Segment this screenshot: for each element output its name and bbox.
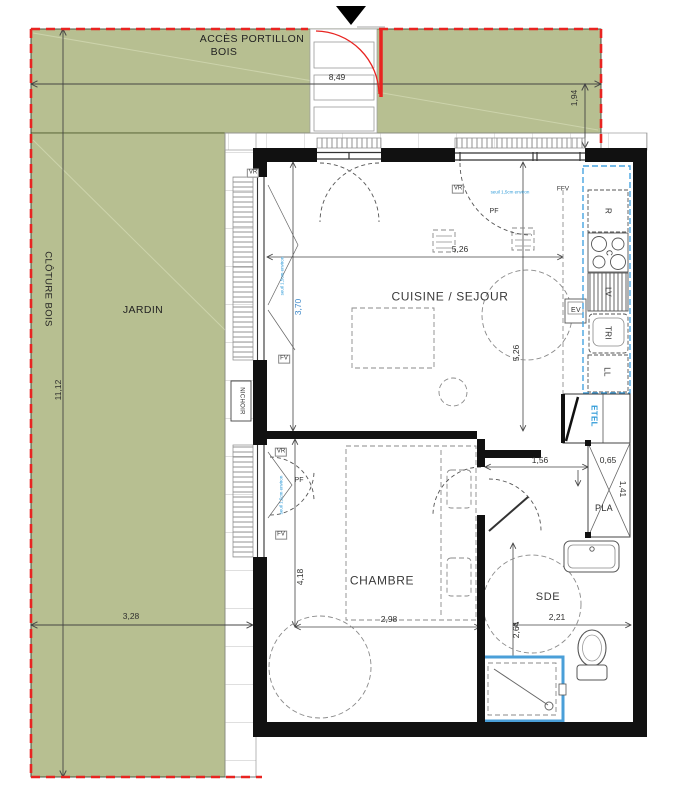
threshold-note: seuil 1,5cm environ	[279, 257, 284, 296]
cooktop-label: C	[604, 250, 613, 256]
threshold-note: seuil 1,5cm environ	[491, 189, 530, 194]
window-tag-fv: FV	[275, 531, 287, 540]
room-label-bedroom: CHAMBRE	[350, 574, 414, 587]
washer-label: LL	[602, 367, 611, 377]
sorting-label: TRI	[603, 326, 612, 340]
wall-top	[381, 148, 455, 162]
partition-bedroom-north	[267, 431, 477, 439]
toilet-tank	[577, 665, 607, 680]
door-tag-pf: PF	[295, 477, 304, 485]
dim-wardrobe-width: 0,65	[600, 456, 617, 466]
washbasin	[564, 541, 619, 572]
wall-left	[253, 557, 267, 737]
window-sill	[317, 138, 381, 148]
window-sill	[233, 445, 253, 557]
dim-site-width: 8,49	[329, 73, 346, 83]
dim-living-width: 5,26	[452, 245, 469, 255]
dim-wardrobe-depth: 1,41	[617, 481, 627, 498]
window-sill	[455, 138, 585, 148]
dim-gate-return: 1,94	[570, 90, 580, 107]
shower-handle	[559, 684, 566, 695]
dim-bath-depth: 2,64	[512, 622, 522, 639]
dim-site-height: 11,12	[54, 380, 64, 401]
floor-plan-drawing	[0, 0, 694, 800]
door-tag-pf: PF	[490, 208, 499, 216]
step	[314, 107, 374, 131]
partition-utility	[561, 394, 565, 443]
shower-tray	[481, 657, 563, 721]
sink-label: EV	[571, 307, 581, 315]
wall-left	[253, 360, 267, 445]
window-tag-fv: FV	[278, 355, 290, 364]
wardrobe-label: PLA	[595, 503, 613, 513]
dishwasher-label: LV	[603, 287, 612, 297]
floor-plan-canvas: ACCÈS PORTILLON BOIS CLÔTURE BOIS JARDIN…	[0, 0, 694, 800]
partition-bedroom-bath	[477, 515, 485, 722]
access-label-line2: BOIS	[211, 47, 238, 59]
dim-bedroom-width: 2,98	[381, 615, 398, 625]
utility-label: ETEL	[589, 405, 598, 427]
threshold-note: seuil 1,5cm environ	[278, 476, 283, 515]
window-tag-ffv: FFV	[557, 185, 569, 192]
wardrobe-jamb	[585, 532, 591, 538]
fridge-label: R	[603, 208, 612, 214]
garden-left-column	[31, 133, 225, 777]
shutter-tag-vr: VR	[275, 448, 287, 457]
dim-bedroom-depth: 4,18	[296, 569, 306, 586]
shutter-tag-vr: VR	[247, 169, 259, 178]
room-label-bathroom: SDE	[536, 591, 560, 603]
dim-hall-width: 1,56	[532, 456, 549, 466]
window-sill	[233, 177, 253, 360]
fence-label: CLÔTURE BOIS	[42, 251, 53, 327]
dim-bath-width: 2,21	[549, 613, 566, 623]
wall-bottom	[253, 722, 647, 737]
shutter-tag-vr: VR	[452, 185, 464, 194]
nichoir-label: NICHOIR	[238, 387, 245, 414]
wall-right	[633, 148, 647, 737]
dim-bay-width: 3,70	[294, 299, 304, 316]
dim-living-depth: 5,26	[512, 345, 522, 362]
room-label-living: CUISINE / SEJOUR	[392, 290, 509, 303]
dim-garden-width: 3,28	[123, 612, 140, 622]
entry-marker-triangle	[336, 6, 366, 25]
access-label-line1: ACCÈS PORTILLON	[200, 34, 304, 46]
garden-label: JARDIN	[123, 305, 163, 317]
gate-path	[310, 27, 385, 133]
wardrobe-jamb	[585, 440, 591, 446]
